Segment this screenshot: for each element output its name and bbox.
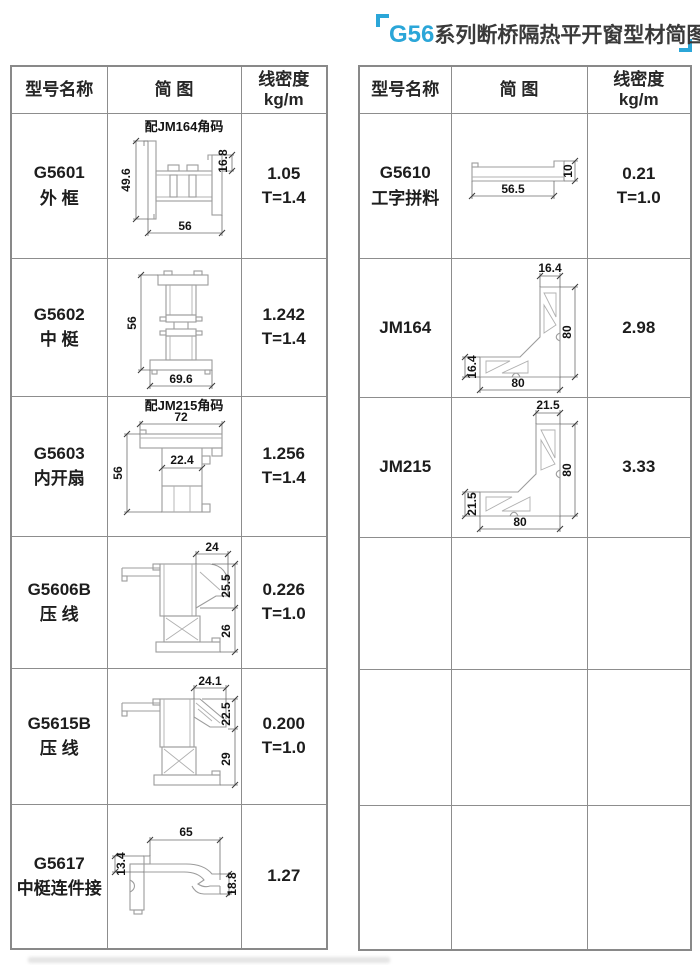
dim-label: 24.1 bbox=[198, 674, 222, 688]
dim-label: 80 bbox=[560, 325, 574, 339]
model-cell bbox=[359, 669, 451, 805]
density-cell bbox=[587, 805, 691, 950]
model-cell: G5615B 压 线 bbox=[11, 668, 107, 804]
dim-label: 56 bbox=[111, 466, 125, 480]
title-rest: 系列断桥隔热平开窗型材简图 bbox=[434, 24, 700, 47]
profile-diagram-g5617: 13.4 65 18.8 bbox=[108, 816, 240, 936]
dim-label: 29 bbox=[219, 752, 233, 766]
header-model: 型号名称 bbox=[11, 66, 107, 113]
table-row: G5603 内开扇 配JM215角码 72 bbox=[11, 396, 327, 536]
dim-label: 22.4 bbox=[170, 453, 194, 467]
table-row: G5617 中梃连件接 13.4 bbox=[11, 804, 327, 949]
table-row-empty bbox=[359, 805, 691, 950]
density-cell: 3.33 bbox=[587, 397, 691, 537]
table-header-row: 型号名称 简 图 线密度 kg/m bbox=[11, 66, 327, 113]
model-cell bbox=[359, 537, 451, 669]
table-row: G5615B 压 线 bbox=[11, 668, 327, 804]
profile-diagram-jm164: 16.4 80 16.4 80 bbox=[452, 259, 588, 397]
dim-label: 21.5 bbox=[465, 492, 479, 516]
table-row: JM164 16.4 bbox=[359, 258, 691, 397]
dim-label: 25.5 bbox=[219, 574, 233, 598]
model-cell bbox=[359, 805, 451, 950]
density-cell: 1.242 T=1.4 bbox=[241, 258, 327, 396]
model-cell: G5606B 压 线 bbox=[11, 536, 107, 668]
diagram-cell bbox=[451, 537, 587, 669]
diagram-note: 配JM164角码 bbox=[145, 119, 224, 134]
dim-label: 65 bbox=[179, 825, 193, 839]
dim-label: 80 bbox=[513, 515, 527, 529]
model-cell: JM164 bbox=[359, 258, 451, 397]
dim-label: 22.5 bbox=[219, 702, 233, 726]
table-row: G5610 工字拼料 10 56.5 bbox=[359, 113, 691, 258]
table-row-empty bbox=[359, 669, 691, 805]
profile-diagram-g5603: 配JM215角码 72 22.4 bbox=[108, 398, 240, 534]
title-bracket-open-icon bbox=[376, 14, 389, 27]
profile-diagram-g5610: 10 56.5 bbox=[452, 151, 586, 221]
model-cell: G5610 工字拼料 bbox=[359, 113, 451, 258]
dim-label: 69.6 bbox=[169, 372, 193, 386]
title-series: G56 bbox=[389, 21, 434, 48]
diagram-cell: 56 69.6 bbox=[107, 258, 241, 396]
diagram-cell: 13.4 65 18.8 bbox=[107, 804, 241, 949]
dim-label: 16.4 bbox=[538, 261, 562, 275]
table-header-row: 型号名称 简 图 线密度 kg/m bbox=[359, 66, 691, 113]
model-cell: G5603 内开扇 bbox=[11, 396, 107, 536]
dim-label: 80 bbox=[560, 463, 574, 477]
dim-label: 16.4 bbox=[465, 354, 479, 378]
diagram-cell: 21.5 80 21.5 80 bbox=[451, 397, 587, 537]
profile-diagram-g5602: 56 69.6 bbox=[108, 261, 240, 393]
density-cell bbox=[587, 669, 691, 805]
diagram-cell: 配JM164角码 49.6 bbox=[107, 113, 241, 258]
density-cell: 0.226 T=1.0 bbox=[241, 536, 327, 668]
table-row: G5601 外 框 配JM164角码 bbox=[11, 113, 327, 258]
diagram-cell bbox=[451, 805, 587, 950]
dim-label: 24 bbox=[205, 540, 219, 554]
table-row: G5606B 压 线 bbox=[11, 536, 327, 668]
density-cell: 2.98 bbox=[587, 258, 691, 397]
dim-label: 56.5 bbox=[501, 182, 525, 196]
diagram-cell: 配JM215角码 72 22.4 bbox=[107, 396, 241, 536]
cropped-footer-text bbox=[28, 957, 390, 963]
dim-label: 26 bbox=[219, 624, 233, 638]
table-row-empty bbox=[359, 537, 691, 669]
dim-label: 13.4 bbox=[114, 852, 128, 876]
header-diagram: 简 图 bbox=[451, 66, 587, 113]
page-title-text: G56系列断桥隔热平开窗型材简图 bbox=[389, 19, 700, 49]
profile-diagram-g5615b: 24.1 22.5 29 bbox=[108, 671, 240, 801]
header-density: 线密度 kg/m bbox=[241, 66, 327, 113]
table-row: G5602 中 梃 bbox=[11, 258, 327, 396]
density-cell: 1.256 T=1.4 bbox=[241, 396, 327, 536]
density-cell: 0.21 T=1.0 bbox=[587, 113, 691, 258]
diagram-cell: 10 56.5 bbox=[451, 113, 587, 258]
dim-label: 49.6 bbox=[119, 167, 133, 191]
model-cell: G5617 中梃连件接 bbox=[11, 804, 107, 949]
dim-label: 16.8 bbox=[216, 148, 230, 172]
diagram-cell: 24 25.5 26 bbox=[107, 536, 241, 668]
catalog-page: G56系列断桥隔热平开窗型材简图 型号名称 简 图 线密度 kg/m G5601… bbox=[0, 0, 700, 965]
model-cell: G5601 外 框 bbox=[11, 113, 107, 258]
page-title: G56系列断桥隔热平开窗型材简图 bbox=[376, 14, 692, 52]
dim-label: 56 bbox=[178, 219, 192, 233]
model-cell: G5602 中 梃 bbox=[11, 258, 107, 396]
dim-label: 72 bbox=[174, 410, 188, 424]
header-density: 线密度 kg/m bbox=[587, 66, 691, 113]
table-row: JM215 21.5 bbox=[359, 397, 691, 537]
diagram-cell bbox=[451, 669, 587, 805]
dim-label: 21.5 bbox=[536, 398, 560, 412]
diagram-cell: 24.1 22.5 29 bbox=[107, 668, 241, 804]
header-model: 型号名称 bbox=[359, 66, 451, 113]
density-cell bbox=[587, 537, 691, 669]
model-cell: JM215 bbox=[359, 397, 451, 537]
profile-diagram-g5606b: 24 25.5 26 bbox=[108, 538, 240, 666]
diagram-cell: 16.4 80 16.4 80 bbox=[451, 258, 587, 397]
density-cell: 0.200 T=1.0 bbox=[241, 668, 327, 804]
profile-diagram-g5601: 配JM164角码 49.6 bbox=[108, 117, 240, 255]
profile-diagram-jm215: 21.5 80 21.5 80 bbox=[452, 398, 588, 536]
dim-label: 18.8 bbox=[225, 872, 239, 896]
dim-label: 56 bbox=[125, 316, 139, 330]
density-cell: 1.05 T=1.4 bbox=[241, 113, 327, 258]
density-cell: 1.27 bbox=[241, 804, 327, 949]
left-profile-table: 型号名称 简 图 线密度 kg/m G5601 外 框 配JM164角码 bbox=[10, 65, 328, 950]
dim-label: 10 bbox=[561, 164, 575, 178]
dim-label: 80 bbox=[511, 376, 525, 390]
right-profile-table: 型号名称 简 图 线密度 kg/m G5610 工字拼料 bbox=[358, 65, 692, 951]
header-diagram: 简 图 bbox=[107, 66, 241, 113]
